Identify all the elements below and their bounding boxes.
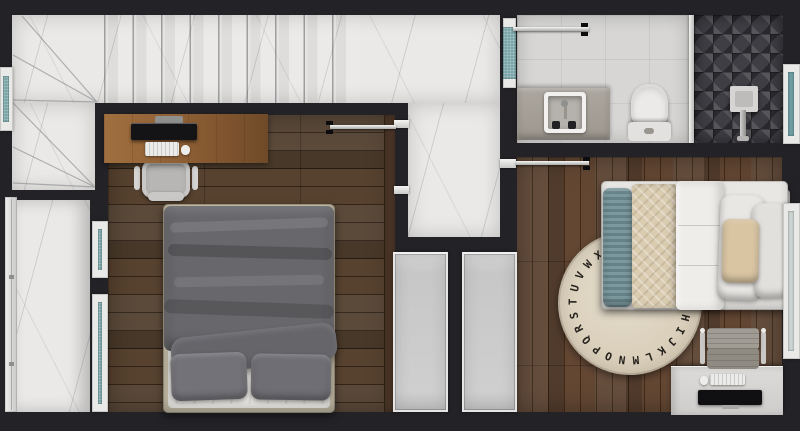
wardrobe-bedroom-1 <box>393 252 448 412</box>
floor-plan: ABCDEFGHIJKLMNOPQRSTUVWXYZ <box>0 0 800 431</box>
chair-bedroom-2 <box>700 326 766 372</box>
rug-letter-W: W <box>582 258 595 270</box>
keyboard-bedroom-2 <box>710 374 745 385</box>
bedroom-2-window <box>783 203 800 359</box>
mouse-bedroom-2 <box>700 376 708 385</box>
bedroom-1-window-lower <box>92 294 108 412</box>
rug-letter-R: R <box>573 323 586 334</box>
bedroom-2-door-leaf <box>516 161 589 165</box>
flush-button <box>644 128 654 134</box>
vanity-sink <box>544 92 586 133</box>
balcony-glazing <box>5 197 17 412</box>
bathroom-window <box>783 64 800 144</box>
rug-letter-L: L <box>644 350 654 363</box>
rug-letter-H: H <box>679 313 691 322</box>
rug-letter-M: M <box>632 354 640 366</box>
staircase-window <box>0 67 13 131</box>
rug-letter-T: T <box>567 299 578 306</box>
rug-letter-Q: Q <box>580 334 593 346</box>
bedroom-1-window-upper <box>92 221 108 278</box>
bedroom-1-door-leaf <box>330 125 396 129</box>
balcony-floor <box>17 200 90 412</box>
bed-pillow-left <box>170 352 248 402</box>
toilet-tank <box>628 122 671 141</box>
rug-letter-N: N <box>618 354 626 366</box>
rug-letter-O: O <box>604 350 614 363</box>
shower-pole <box>740 110 746 138</box>
winder-step-lines <box>12 15 98 191</box>
bed-pillow-right <box>251 353 332 400</box>
hallway-floor <box>408 103 500 237</box>
bathroom-door-handle <box>581 23 588 27</box>
rug-letter-V: V <box>574 270 587 281</box>
keyboard-bedroom-1 <box>145 142 179 156</box>
rug-letter-I: I <box>674 325 687 336</box>
shower-floor <box>694 15 783 143</box>
chair-back-cushion <box>707 328 759 350</box>
bedroom-1-door-handle <box>326 121 333 125</box>
bathroom-door-leaf <box>513 27 589 31</box>
accent-pillow-bedroom-2 <box>721 219 759 284</box>
rug-letter-U: U <box>569 284 581 293</box>
rain-shower-head <box>730 86 758 112</box>
shower-glass-partition <box>689 15 694 143</box>
faucet-knob-right <box>568 121 576 129</box>
faucet-knob-left <box>552 121 560 129</box>
herringbone-throw <box>632 184 677 308</box>
chair-seat-cushion <box>707 348 759 369</box>
monitor-base-bedroom-2 <box>722 405 739 409</box>
bedroom-2-door-handle <box>583 157 590 161</box>
office-chair-bedroom-1 <box>134 160 198 201</box>
rug-letter-P: P <box>591 343 603 356</box>
rug-letter-K: K <box>656 344 668 357</box>
toilet-bowl <box>631 84 668 126</box>
bedroom-2-door-sill <box>500 159 516 168</box>
stair-treads <box>104 15 360 103</box>
teal-lumbar-pillow <box>603 188 632 307</box>
rug-letter-S: S <box>568 311 580 320</box>
monitor-bedroom-1 <box>131 123 197 140</box>
wardrobe-bedroom-2 <box>462 252 517 412</box>
shower-pole-base <box>737 136 749 141</box>
mouse-bedroom-1 <box>181 145 190 155</box>
double-bed-bedroom-1 <box>163 204 335 413</box>
monitor-bedroom-2 <box>698 390 762 405</box>
rug-letter-J: J <box>666 335 679 347</box>
bedroom-1-door-sill-top <box>394 120 409 128</box>
bedroom-1-door-sill-bottom <box>394 186 409 194</box>
